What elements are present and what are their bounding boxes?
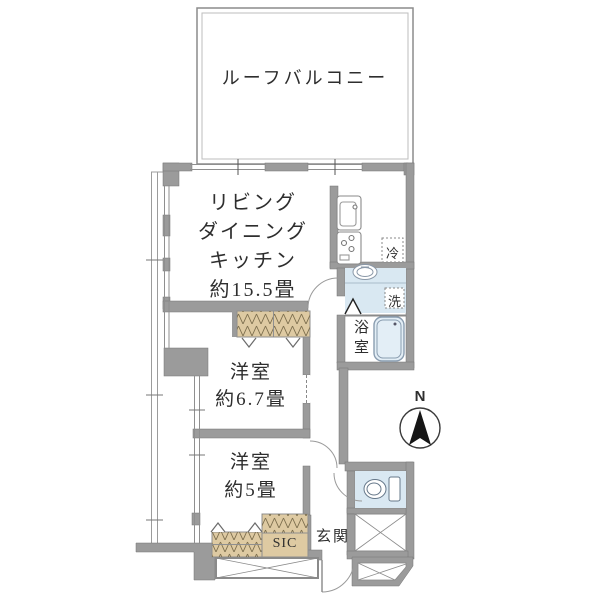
side-boundary-lines [146, 172, 164, 543]
closet-bedroom2 [212, 532, 262, 557]
meter-x-box [352, 557, 413, 586]
washbasin-icon [353, 265, 377, 280]
floor-plan-geometry [0, 0, 600, 600]
ldk-label-size: 約15.5畳 [210, 273, 297, 302]
bedroom1-label: 洋室 [230, 357, 272, 384]
bathroom-label: 浴室 [352, 319, 367, 359]
ldk-label-line1: リビング [209, 186, 297, 215]
bedroom2-size: 約5畳 [224, 475, 278, 502]
entrance-door-arc [322, 560, 354, 592]
ldk-door-arc [308, 278, 338, 308]
bedroom2-door-arc [310, 441, 337, 468]
bathtub-icon [374, 317, 404, 361]
kitchen-sink-icon [337, 196, 361, 230]
floor-plan: ルーフバルコニー リビング ダイニング キッチン 約15.5畳 洋室 約6.7畳… [0, 0, 600, 600]
stove-icon [337, 232, 361, 264]
roof-balcony-label: ルーフバルコニー [222, 64, 389, 90]
bedroom2-label: 洋室 [230, 447, 272, 474]
bedroom1-door-gap [303, 375, 310, 403]
entrance-label: 玄関 [316, 525, 350, 546]
sic-label: SIC [273, 536, 298, 552]
fridge-label: 冷 [386, 243, 399, 262]
ldk-label-line2: ダイニング [198, 215, 308, 244]
shaft-x-box [355, 514, 406, 551]
closet-bedroom1 [232, 311, 310, 337]
porch-x-box [216, 558, 318, 578]
ldk-label-line3: キッチン [209, 244, 297, 273]
compass-north-label: N [415, 388, 426, 405]
bedroom1-size: 約6.7畳 [215, 384, 287, 411]
compass-icon [400, 408, 440, 448]
washer-label: 洗 [388, 291, 401, 310]
